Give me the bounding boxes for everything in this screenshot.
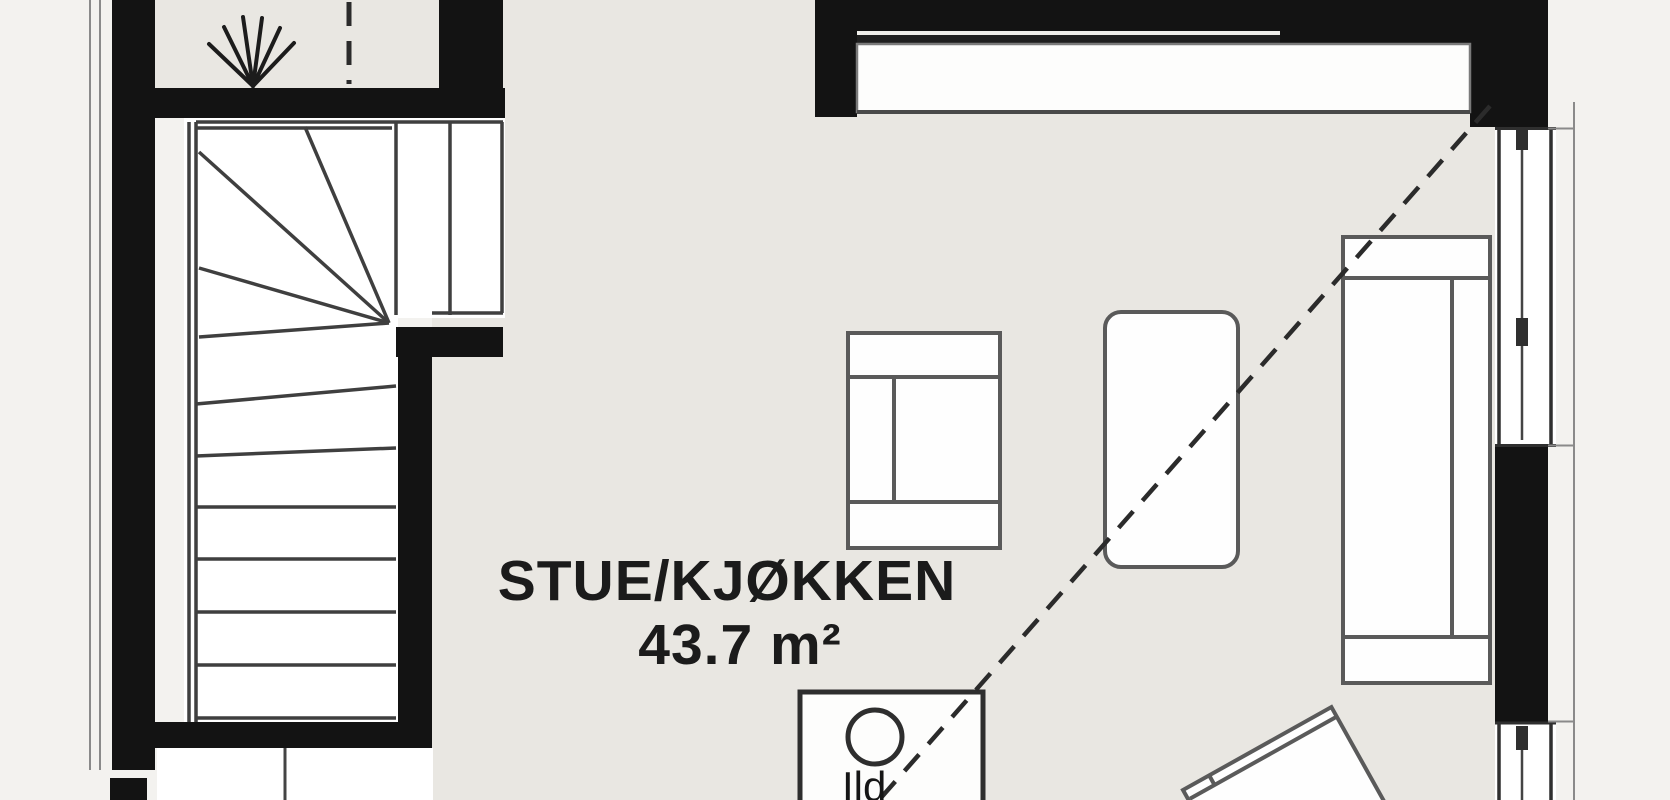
window-right-upper xyxy=(1495,127,1556,447)
upper-left-room-floor xyxy=(155,0,440,90)
wall-top-seam xyxy=(857,31,1280,35)
armchair xyxy=(848,333,1000,548)
fireplace-label: Ild xyxy=(842,763,886,800)
wall-left-jamb xyxy=(110,778,147,800)
wall-bottom xyxy=(155,722,432,748)
stair-lower-area xyxy=(184,318,398,722)
top-opening-floor xyxy=(503,0,815,46)
room-name-label: STUE/KJØKKEN xyxy=(498,549,957,613)
room-area-label: 43.7 m² xyxy=(638,613,841,677)
sofa xyxy=(1343,237,1490,683)
window-latch-top xyxy=(1516,128,1528,150)
wall-stair-vertical xyxy=(398,327,432,748)
floor-plan-canvas: STUE/KJØKKEN 43.7 m² Ild xyxy=(0,0,1670,800)
window-latch-mid xyxy=(1516,318,1528,346)
kitchen-counter xyxy=(857,44,1470,112)
fireplace-flue-circle xyxy=(848,710,902,764)
sofa-outline xyxy=(1343,237,1490,683)
wall-left xyxy=(112,0,155,770)
wall-top-inner-edge xyxy=(857,35,1280,44)
window-right-lower xyxy=(1495,723,1556,800)
wall-right-mid xyxy=(1495,447,1548,723)
wall-top-right-corner xyxy=(1470,0,1548,127)
floor-plan: STUE/KJØKKEN 43.7 m² Ild xyxy=(0,0,1670,800)
wall-upper-room-right xyxy=(439,0,503,118)
armchair-outline xyxy=(848,333,1000,548)
ottoman-outline xyxy=(1105,312,1238,567)
room-below-stairs xyxy=(157,748,433,800)
wall-top-pier xyxy=(815,0,857,117)
ottoman-table xyxy=(1105,312,1238,567)
window-latch xyxy=(1516,726,1528,750)
window-opening xyxy=(1495,127,1556,447)
